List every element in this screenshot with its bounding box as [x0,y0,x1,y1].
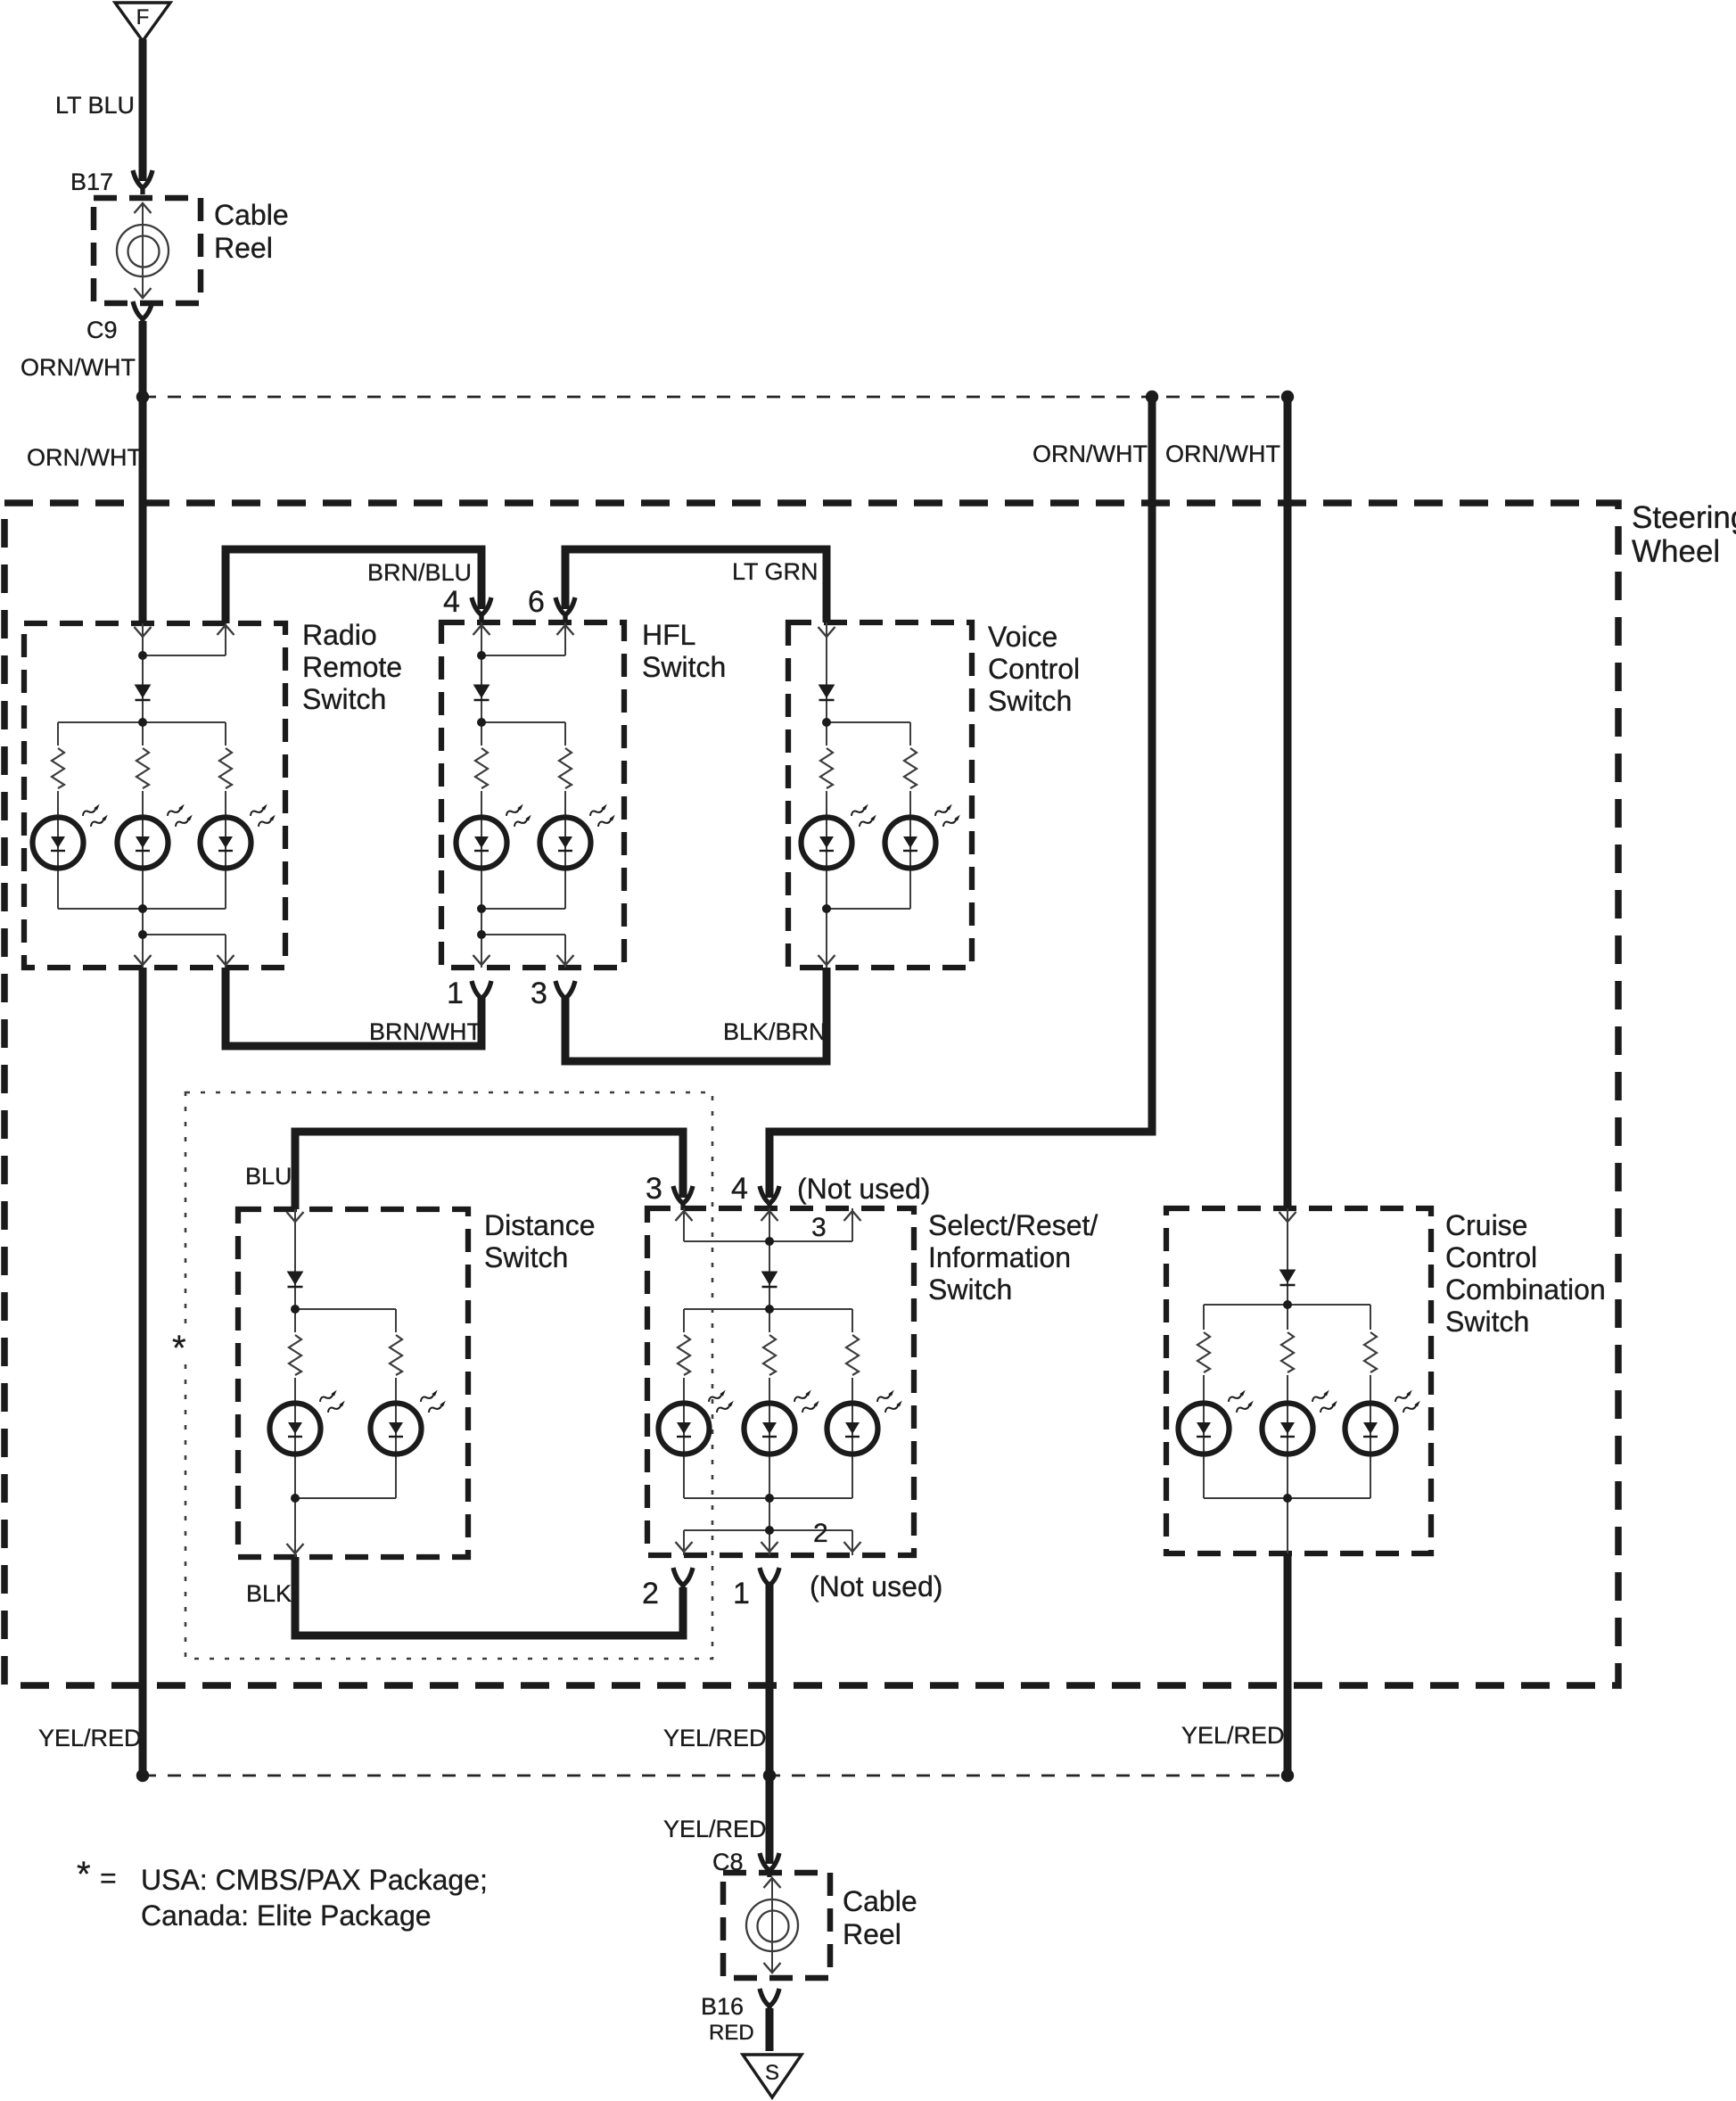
svg-text:*: * [172,1329,186,1368]
svg-text:BRN/WHT: BRN/WHT [369,1018,481,1045]
svg-text:Remote: Remote [302,651,402,683]
svg-text:Radio: Radio [302,619,377,651]
svg-text:BRN/BLU: BRN/BLU [367,559,472,586]
svg-text:LT GRN: LT GRN [732,558,819,585]
svg-text:Steering: Steering [1632,500,1736,535]
svg-text:USA: CMBS/PAX Package;: USA: CMBS/PAX Package; [141,1864,488,1896]
svg-text:ORN/WHT: ORN/WHT [1033,441,1148,467]
svg-text:6: 6 [528,585,545,619]
svg-text:Switch: Switch [928,1273,1012,1306]
svg-text:Switch: Switch [302,683,386,715]
svg-text:F: F [136,5,150,29]
svg-text:*: * [77,1855,91,1894]
svg-text:=: = [100,1862,117,1894]
svg-text:4: 4 [731,1172,748,1206]
svg-text:ORN/WHT: ORN/WHT [27,444,142,471]
svg-text:3: 3 [811,1213,827,1242]
svg-text:Control: Control [1445,1241,1537,1273]
svg-text:Wheel: Wheel [1632,534,1720,569]
svg-text:Select/Reset/: Select/Reset/ [928,1209,1098,1241]
svg-text:YEL/RED: YEL/RED [38,1725,142,1751]
svg-text:4: 4 [443,585,460,619]
svg-text:Control: Control [988,653,1080,685]
svg-text:Canada: Elite Package: Canada: Elite Package [141,1899,432,1932]
svg-text:ORN/WHT: ORN/WHT [1165,441,1280,467]
svg-text:(Not used): (Not used) [797,1173,930,1205]
svg-text:B16: B16 [701,1993,744,2020]
svg-text:YEL/RED: YEL/RED [663,1725,767,1751]
svg-text:2: 2 [813,1519,828,1548]
svg-text:1: 1 [447,976,464,1010]
svg-text:HFL: HFL [642,619,695,651]
svg-text:B17: B17 [70,169,113,195]
svg-text:Distance: Distance [484,1209,596,1241]
svg-text:BLK/BRN: BLK/BRN [723,1018,827,1045]
svg-text:Reel: Reel [843,1918,901,1950]
svg-text:(Not used): (Not used) [810,1570,942,1603]
svg-text:Voice: Voice [988,621,1057,653]
svg-text:C9: C9 [86,317,118,343]
svg-text:BLU: BLU [245,1163,292,1190]
svg-text:S: S [765,2061,779,2085]
svg-text:3: 3 [646,1172,662,1206]
svg-text:Information: Information [928,1241,1071,1273]
svg-text:ORN/WHT: ORN/WHT [21,354,136,381]
svg-text:Cable: Cable [843,1885,917,1917]
svg-text:Cruise: Cruise [1445,1209,1527,1241]
svg-text:3: 3 [531,976,547,1010]
svg-text:Combination: Combination [1445,1273,1606,1306]
svg-text:Switch: Switch [1445,1306,1529,1338]
svg-text:2: 2 [642,1577,659,1611]
svg-text:Switch: Switch [988,685,1072,717]
svg-text:Switch: Switch [484,1241,568,1273]
svg-text:YEL/RED: YEL/RED [1181,1722,1285,1749]
svg-text:Reel: Reel [214,232,273,264]
svg-text:Switch: Switch [642,651,726,683]
svg-text:1: 1 [733,1577,750,1611]
svg-text:Cable: Cable [214,199,289,231]
svg-text:RED: RED [709,2021,754,2045]
svg-text:YEL/RED: YEL/RED [663,1816,767,1842]
svg-text:LT BLU: LT BLU [55,92,135,119]
svg-text:BLK: BLK [246,1580,292,1607]
